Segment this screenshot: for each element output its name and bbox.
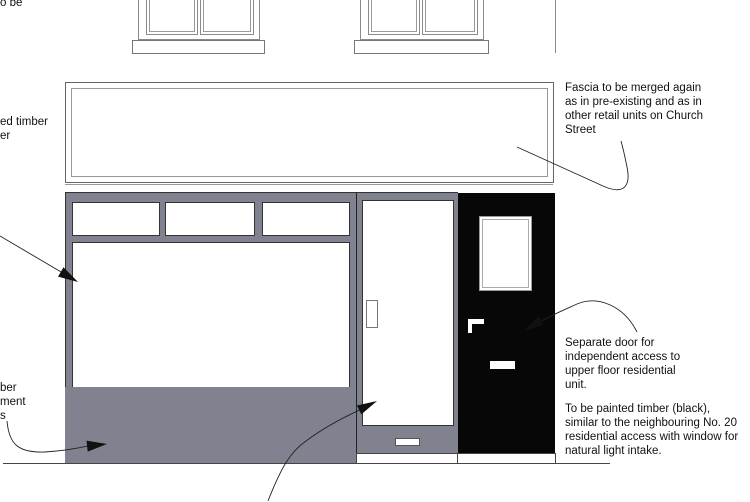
upper-window-right-pane-2 — [422, 0, 478, 35]
leader-line-residential-door — [542, 301, 637, 332]
fascia-panel — [65, 82, 554, 183]
fascia-panel-inner-border — [71, 88, 548, 177]
upper-window-left-pane-1 — [146, 0, 198, 35]
threshold-vent — [395, 438, 420, 446]
annotation-painted-timber-note: To be painted timber (black), similar to… — [565, 402, 750, 458]
upper-window-left-sill — [132, 40, 265, 54]
annotation-left-lower-fragment: ber ment s — [0, 381, 26, 423]
annotation-left-upper-fragment: ed timber er — [0, 115, 48, 143]
annotation-separate-door-note: Separate door for independent access to … — [565, 336, 745, 392]
elevation-drawing: o be — [0, 0, 750, 502]
shop-display-window — [72, 242, 350, 388]
leader-line-timber-frame — [0, 236, 62, 273]
residential-door-letterbox — [490, 361, 515, 369]
shop-door-handle — [366, 300, 378, 328]
transom-window-1 — [72, 202, 160, 236]
upper-window-right-pane-1 — [368, 0, 420, 35]
upper-window-right-sill — [354, 40, 489, 54]
upper-window-left-pane-2 — [200, 0, 254, 35]
stall-riser — [65, 387, 357, 463]
annotation-top-left-fragment: o be — [0, 0, 22, 10]
transom-window-2 — [165, 202, 255, 236]
annotation-fascia-note: Fascia to be merged again as in pre-exis… — [565, 81, 745, 137]
residential-door-window-inner — [482, 219, 529, 288]
fascia-bottom-trim — [65, 184, 553, 185]
residential-door-window — [479, 216, 532, 291]
building-edge-line — [555, 0, 556, 53]
transom-window-3 — [262, 202, 350, 236]
residential-door-handle-stem — [468, 324, 472, 333]
ground-line — [3, 463, 610, 464]
